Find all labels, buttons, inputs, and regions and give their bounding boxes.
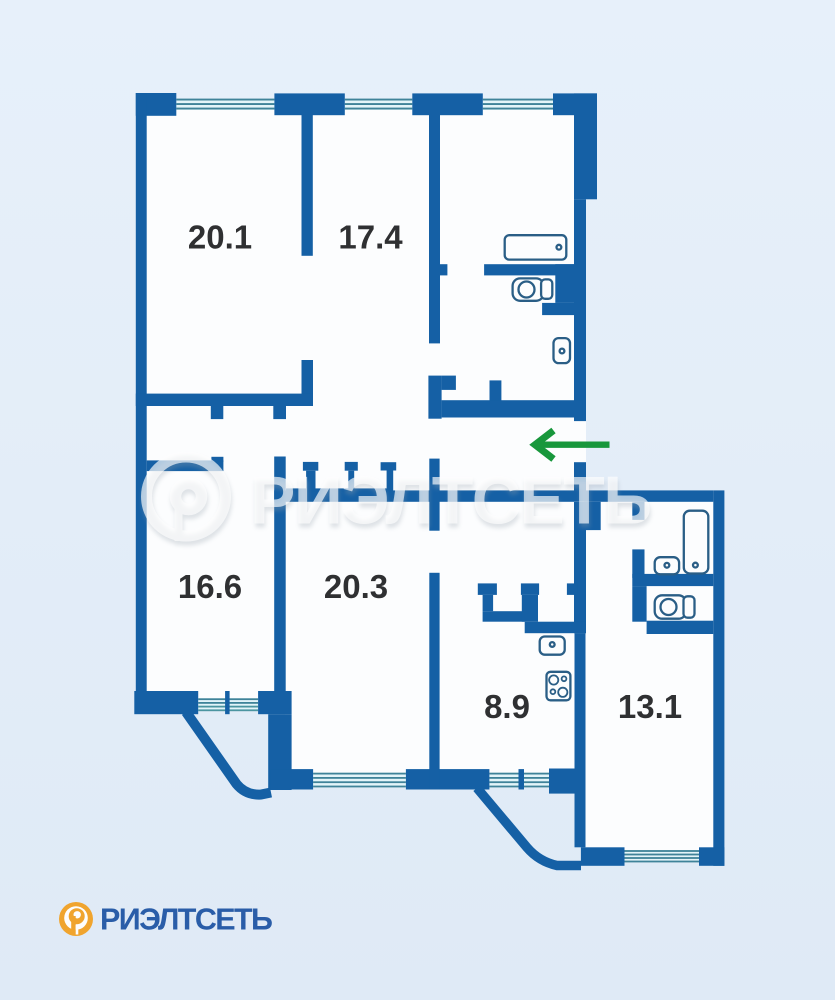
svg-text:РИЭЛТСЕТЬ: РИЭЛТСЕТЬ — [100, 903, 272, 937]
svg-text:20.1: 20.1 — [188, 219, 252, 256]
svg-text:20.3: 20.3 — [324, 568, 388, 605]
svg-text:13.1: 13.1 — [618, 688, 682, 725]
svg-text:8.9: 8.9 — [484, 688, 530, 725]
svg-text:16.6: 16.6 — [178, 568, 242, 605]
svg-text:РИЭЛТСЕТЬ: РИЭЛТСЕТЬ — [250, 463, 651, 539]
svg-text:17.4: 17.4 — [338, 219, 403, 256]
